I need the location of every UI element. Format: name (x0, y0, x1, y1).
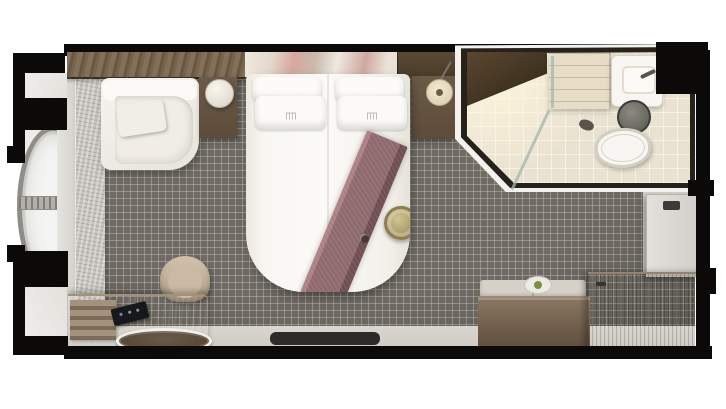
hull-wedge-lower (25, 287, 67, 337)
entry-door (646, 194, 698, 277)
wardrobe-handle (596, 282, 606, 286)
hull-section-lower-inner (24, 251, 68, 287)
door-handle (663, 201, 680, 210)
hull-wedge-upper (25, 73, 67, 98)
vanity-shelves (549, 53, 611, 109)
left-table-lamp (205, 79, 234, 108)
right-wall-tab-upper (688, 180, 714, 196)
hull-section-upper-inner (24, 96, 67, 130)
small-ornament (360, 234, 369, 243)
bottom-wall (64, 346, 712, 359)
bench-base (478, 296, 590, 348)
decor-fruit (534, 281, 542, 289)
corner-sofa (101, 78, 199, 170)
hull-step-upper (7, 146, 25, 163)
right-wall-tab-lower (700, 268, 716, 294)
hull-bar-lower (13, 250, 25, 346)
pillow-front-left (255, 96, 326, 130)
toilet-seat (600, 133, 645, 163)
pillow-front-right (337, 96, 407, 130)
pendant-lamp (426, 79, 453, 106)
pillow-logo (367, 112, 377, 119)
bench-sofa (478, 276, 590, 346)
hull-flange-bottom (13, 336, 68, 355)
queen-bed (246, 74, 410, 292)
decor-bowl (524, 276, 552, 294)
drawer-trays (70, 300, 116, 340)
wood-ceiling-trim (67, 52, 245, 79)
pendant-lamp-center (436, 89, 443, 96)
decorative-plate (384, 206, 410, 240)
floor-mat (270, 332, 380, 345)
hull-bar-upper (13, 53, 25, 149)
right-wall (696, 50, 710, 346)
wardrobe-cabinet (588, 272, 707, 348)
stateroom-floorplan (0, 0, 726, 409)
pillow-logo (286, 112, 296, 119)
shower-glass-panel (551, 56, 554, 108)
desk-chair-cushion (168, 264, 202, 298)
